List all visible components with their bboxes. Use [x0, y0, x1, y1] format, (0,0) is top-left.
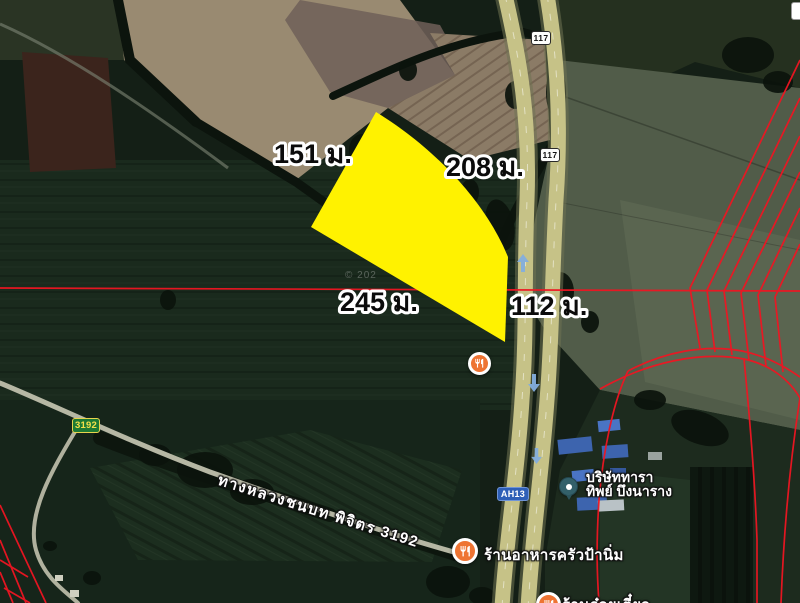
down-arrow-icon: [528, 374, 540, 392]
partial-ui-element: [791, 2, 800, 20]
measurement-north-east: 208 ม.: [446, 152, 524, 182]
up-arrow-icon: [517, 254, 529, 272]
route-shield-117-top: 117: [531, 31, 551, 45]
company-label-line2: ทิพย์ บึงนาราง: [586, 484, 672, 498]
company-label-line1: บริษัททารา: [586, 470, 672, 484]
place-marker[interactable]: [559, 477, 578, 496]
fork-knife-icon: [543, 599, 555, 603]
measurement-north-west: 151 ม.: [274, 139, 352, 169]
route-shield-ah13: AH13: [497, 487, 529, 501]
restaurant-label[interactable]: ร้านอาหารครัวป้านิ่ม: [484, 543, 624, 567]
map-watermark: © 202: [345, 270, 377, 281]
satellite-imagery: 151 ม. 208 ม. 245 ม. 112 ม.: [0, 0, 800, 603]
company-label[interactable]: บริษัททารา ทิพย์ บึงนาราง: [586, 470, 672, 498]
down-arrow-icon: [531, 448, 542, 464]
satellite-map[interactable]: 151 ม. 208 ม. 245 ม. 112 ม. © 202 117 11…: [0, 0, 800, 603]
terrain-fields: 151 ม. 208 ม. 245 ม. 112 ม.: [0, 0, 800, 603]
measurement-south-west: 245 ม.: [340, 287, 418, 317]
restaurant-label-clipped[interactable]: ร้านก๋วยเตี๋ยว: [562, 593, 650, 603]
fork-knife-icon: [459, 545, 471, 557]
restaurant-marker[interactable]: [468, 352, 491, 375]
restaurant-marker[interactable]: [452, 538, 478, 564]
route-shield-117-mid: 117: [540, 148, 560, 162]
fork-knife-icon: [474, 358, 485, 369]
measurement-road-frontage: 112 ม.: [511, 291, 587, 321]
route-shield-3192: 3192: [72, 418, 100, 433]
